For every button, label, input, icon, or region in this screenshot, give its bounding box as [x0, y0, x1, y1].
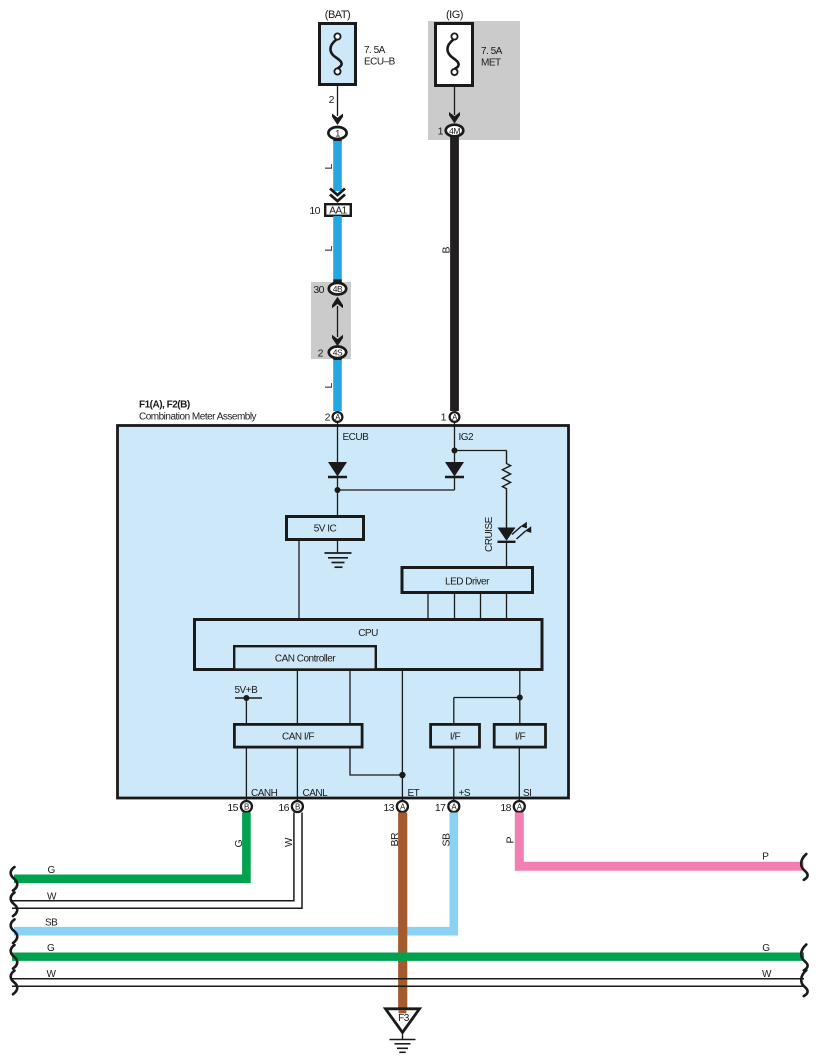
svg-text:7. 5A: 7. 5A [364, 45, 386, 56]
svg-text:B: B [244, 802, 249, 811]
svg-text:5V IC: 5V IC [314, 524, 337, 535]
svg-text:ECU–B: ECU–B [364, 57, 396, 68]
svg-text:W: W [284, 837, 295, 847]
svg-text:CRUISE: CRUISE [484, 516, 495, 552]
svg-text:SB: SB [45, 918, 58, 929]
svg-text:10: 10 [309, 205, 320, 217]
svg-text:1: 1 [438, 126, 444, 138]
svg-text:L: L [323, 246, 335, 252]
svg-text:4M: 4M [449, 126, 460, 136]
svg-text:2: 2 [325, 412, 331, 424]
svg-text:CANL: CANL [303, 788, 329, 799]
svg-text:1: 1 [441, 412, 447, 424]
svg-text:17: 17 [435, 802, 446, 814]
svg-text:+S: +S [459, 788, 471, 799]
svg-text:B: B [441, 247, 453, 254]
svg-text:7. 5A: 7. 5A [481, 46, 503, 57]
svg-text:G: G [762, 943, 770, 954]
svg-text:P: P [505, 837, 517, 844]
svg-text:13: 13 [383, 802, 394, 814]
svg-text:(IG): (IG) [446, 9, 463, 21]
svg-text:BR: BR [389, 832, 401, 847]
svg-text:4S: 4S [333, 348, 343, 358]
svg-text:16: 16 [278, 802, 289, 814]
svg-text:F3: F3 [398, 1013, 410, 1024]
svg-text:I/F: I/F [515, 732, 526, 743]
svg-text:ET: ET [408, 788, 420, 799]
svg-text:Combination Meter Assembly: Combination Meter Assembly [139, 412, 257, 423]
svg-text:4B: 4B [333, 284, 343, 294]
svg-text:(BAT): (BAT) [325, 9, 350, 21]
svg-text:CAN I/F: CAN I/F [282, 732, 314, 743]
svg-text:AA1: AA1 [329, 206, 347, 217]
svg-text:LED Driver: LED Driver [445, 577, 490, 588]
svg-text:L: L [323, 164, 335, 170]
svg-text:CPU: CPU [358, 628, 378, 639]
svg-text:G: G [48, 865, 56, 876]
svg-text:I/F: I/F [450, 732, 461, 743]
svg-text:CAN Controller: CAN Controller [275, 654, 336, 665]
svg-text:SI: SI [523, 788, 531, 799]
svg-text:1: 1 [335, 128, 340, 138]
svg-text:30: 30 [313, 284, 324, 296]
svg-text:18: 18 [500, 802, 511, 814]
svg-text:CANH: CANH [251, 788, 278, 799]
svg-text:IG2: IG2 [459, 432, 475, 443]
svg-text:G: G [233, 840, 245, 848]
svg-text:SB: SB [441, 833, 453, 847]
svg-text:2: 2 [318, 348, 324, 360]
svg-text:P: P [762, 852, 769, 863]
svg-text:W: W [762, 969, 772, 980]
svg-text:15: 15 [227, 802, 238, 814]
svg-text:2: 2 [329, 94, 335, 106]
svg-text:W: W [47, 969, 57, 980]
svg-text:F1(A), F2(B): F1(A), F2(B) [139, 400, 190, 411]
svg-text:G: G [47, 943, 55, 954]
svg-text:B: B [295, 802, 300, 811]
svg-text:ECUB: ECUB [343, 432, 370, 443]
svg-text:W: W [47, 891, 57, 902]
svg-text:MET: MET [481, 58, 501, 69]
svg-text:L: L [323, 383, 335, 389]
svg-text:5V+B: 5V+B [235, 685, 259, 696]
